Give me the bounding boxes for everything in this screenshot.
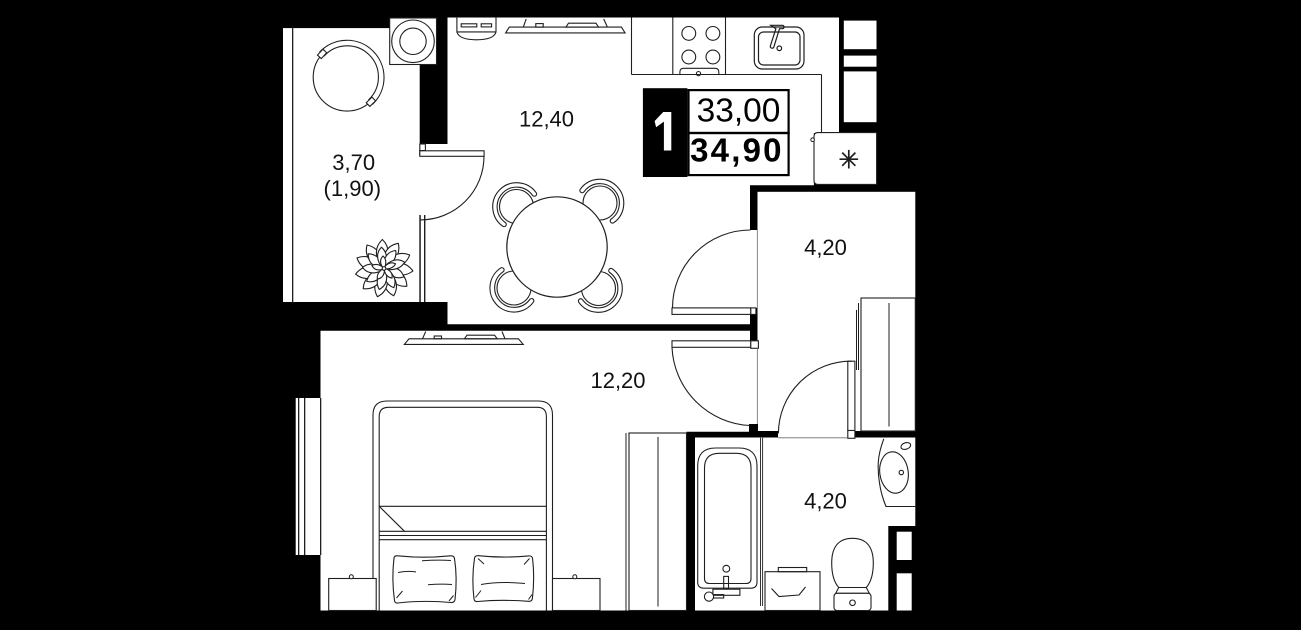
svg-text:34,90: 34,90 bbox=[690, 131, 784, 168]
svg-text:4,20: 4,20 bbox=[804, 489, 847, 514]
svg-text:33,00: 33,00 bbox=[697, 92, 781, 129]
svg-text:12,20: 12,20 bbox=[590, 368, 645, 393]
svg-text:3,70: 3,70 bbox=[332, 150, 375, 175]
svg-text:12,40: 12,40 bbox=[519, 107, 574, 132]
svg-text:4,20: 4,20 bbox=[804, 235, 847, 260]
svg-text:(1,90): (1,90) bbox=[324, 176, 381, 201]
